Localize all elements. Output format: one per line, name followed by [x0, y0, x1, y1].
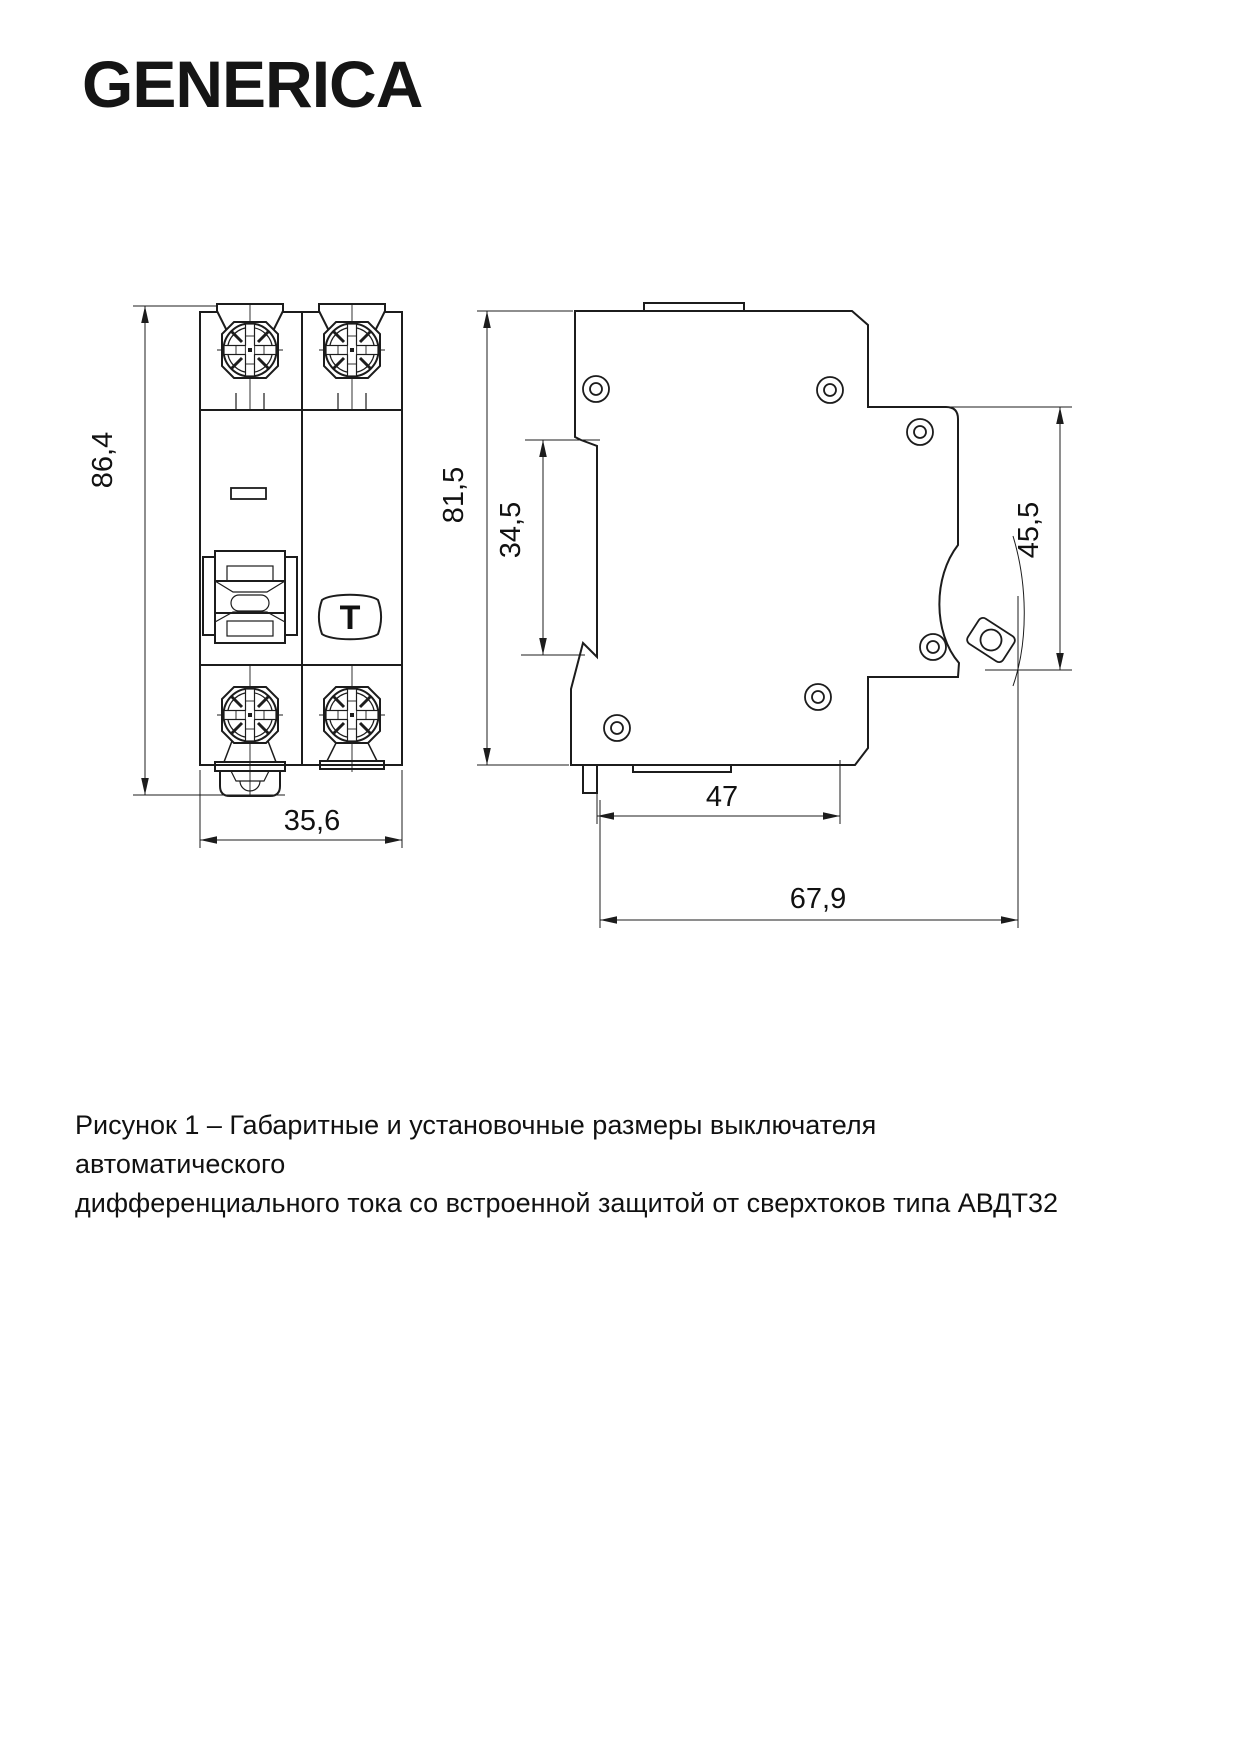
front-view: T — [200, 303, 402, 797]
dim-mount-height-label: 45,5 — [1013, 502, 1045, 558]
dim-depth-body-label: 47 — [706, 781, 738, 813]
side-view — [571, 303, 1024, 793]
dim-din-offset-label: 34,5 — [495, 502, 527, 558]
din-tab — [583, 765, 597, 793]
technical-drawing: T — [0, 0, 1238, 980]
dim-front-width-label: 35,6 — [284, 805, 340, 837]
test-button-label: T — [340, 599, 361, 637]
page: GENERICA — [0, 0, 1238, 1757]
toggle-handle — [203, 551, 297, 643]
dim-depth-total-label: 67,9 — [790, 883, 846, 915]
screw-terminal — [217, 322, 283, 378]
top-tab — [644, 303, 744, 311]
bottom-tab — [633, 765, 731, 772]
test-button: T — [319, 595, 381, 640]
dim-side-height-label: 81,5 — [438, 467, 470, 523]
figure-caption: Рисунок 1 – Габаритные и установочные ра… — [75, 1106, 1075, 1223]
rivets — [583, 376, 946, 741]
screw-terminal — [319, 322, 385, 378]
figure-caption-line1: Рисунок 1 – Габаритные и установочные ра… — [75, 1106, 1075, 1184]
din-latch-screw — [965, 616, 1017, 664]
dimensions: 86,4 35,6 81,5 34,5 — [87, 306, 1072, 928]
dim-front-height-label: 86,4 — [87, 432, 119, 488]
indicator-window — [231, 488, 266, 499]
figure-caption-line2: дифференциального тока со встроенной защ… — [75, 1184, 1075, 1223]
screw-terminal — [319, 687, 385, 743]
screw-terminal — [217, 687, 283, 743]
